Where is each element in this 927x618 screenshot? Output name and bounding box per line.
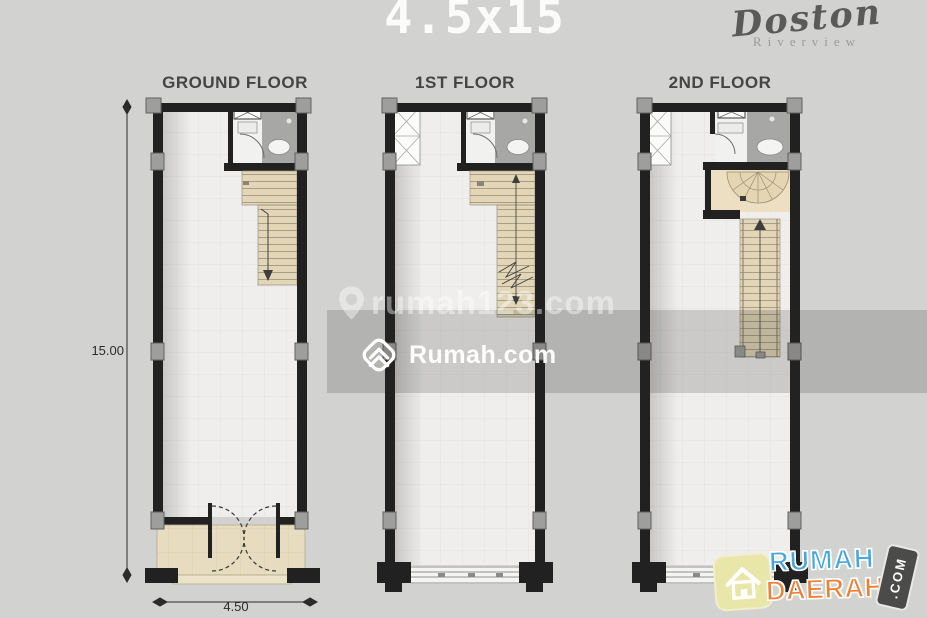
location-pin-icon (338, 285, 365, 321)
rumah-daerah-com-text: .COM (885, 555, 909, 599)
toilet-icon (757, 139, 783, 155)
drain-icon (770, 117, 775, 122)
sink-icon (238, 122, 257, 133)
drain-icon (523, 119, 528, 124)
fan-room (703, 170, 790, 219)
ground-floor-plan (145, 98, 320, 584)
ground-floor-label: GROUND FLOOR (160, 73, 310, 93)
toilet-icon (507, 140, 529, 155)
toilet-icon (268, 140, 290, 155)
rumah-com-watermark-text: Rumah.com (409, 341, 557, 370)
rumah123-watermark-text: rumah123.com (371, 284, 616, 322)
rumah-com-logo-icon (358, 334, 400, 376)
rumah-daerah-badge (712, 552, 774, 612)
rumah-daerah-line2: DAERAH (765, 572, 885, 607)
rumah123-watermark: rumah123.com (338, 284, 616, 322)
floorplan-listing-image: { "header": { "title": "4.5x15", "brand"… (0, 0, 927, 618)
brand-logo: Doston Riverview (712, 0, 902, 50)
second-floor-label: 2ND FLOOR (650, 73, 790, 93)
first-floor-label: 1ST FLOOR (395, 73, 535, 93)
height-dimension-label: 15.00 (78, 343, 124, 358)
rumah-com-watermark: Rumah.com (358, 334, 557, 376)
drain-icon (287, 119, 292, 124)
page-title: 4.5x15 (360, 0, 590, 45)
sink-icon (471, 122, 490, 133)
terrace (157, 525, 305, 575)
house-icon (720, 560, 767, 605)
width-dimension-label: 4.50 (210, 599, 262, 614)
sink-icon (718, 123, 743, 133)
